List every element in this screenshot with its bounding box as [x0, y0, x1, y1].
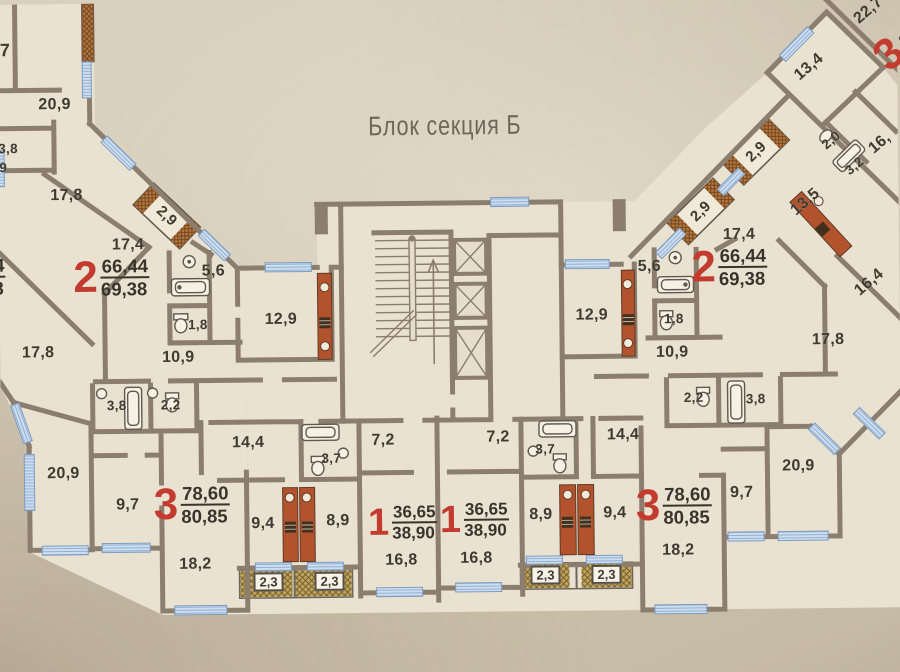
- room-label: 1,8: [664, 311, 684, 326]
- balcony-label: 2,3: [314, 572, 344, 591]
- room-label: 17,4: [112, 236, 145, 254]
- room-label: 3,7: [535, 441, 555, 456]
- apartment-1-left-label: 1 36,6538,90: [368, 502, 437, 543]
- room-label: 9: [0, 160, 7, 175]
- room-label: 17,8: [50, 187, 83, 205]
- room-label: 9,4: [251, 515, 274, 533]
- balcony-label: 2,3: [591, 565, 621, 584]
- total-area: 69,38: [101, 278, 150, 300]
- balcony-label: 2,3: [253, 572, 283, 591]
- bathtub-icon: [539, 421, 576, 437]
- room-label: 17,4: [723, 226, 756, 244]
- room-label: 9,7: [116, 496, 139, 514]
- floor-plan-drawing: [0, 0, 900, 672]
- room-label: 3,8: [746, 391, 766, 406]
- room-label: 1,8: [188, 317, 208, 332]
- floor-plan: Блок секция Б 7 20,9 3,8 9 17,8 2,9 17,4…: [0, 0, 900, 672]
- apartment-number: 3: [154, 483, 179, 527]
- room-label: 7,2: [486, 428, 509, 446]
- room-label: 3,8: [0, 141, 18, 156]
- room-label: 7: [0, 40, 10, 61]
- living-area: 36,65: [392, 502, 437, 523]
- room-label: 16,8: [460, 550, 493, 568]
- room-label: 17,8: [812, 331, 845, 349]
- room-label: 9,4: [603, 504, 626, 522]
- room-label: 18,2: [179, 556, 212, 574]
- bathtub-icon: [657, 276, 693, 292]
- room-label: 2,2: [161, 397, 181, 412]
- balcony-label: 2,3: [530, 565, 560, 584]
- room-label: 5,6: [638, 258, 661, 276]
- total-area: 38,90: [392, 523, 437, 542]
- room-label: 8,9: [326, 512, 349, 530]
- living-area: 66,44: [0, 255, 6, 279]
- sink-icon: [669, 252, 681, 264]
- apartment-2-left-label: 2 66,4469,38: [73, 255, 149, 300]
- total-area: 69,38: [0, 278, 6, 300]
- apartment-number: 2: [73, 256, 98, 300]
- apartment-number: 1: [368, 503, 390, 543]
- room-label: 10,9: [656, 344, 689, 362]
- toilet-icon: [174, 314, 188, 333]
- room-label: 14,4: [232, 434, 265, 452]
- bathtub-icon: [171, 279, 209, 296]
- room-label: 7,2: [371, 432, 394, 450]
- living-area: 66,44: [101, 255, 150, 279]
- bathtub-icon: [302, 424, 339, 440]
- total-area: 69,38: [719, 268, 768, 290]
- room-label: 20,9: [782, 457, 815, 475]
- sink-icon: [183, 256, 195, 268]
- room-label: 8,9: [529, 506, 552, 524]
- page-title: Блок секция Б: [368, 110, 522, 143]
- living-area: 78,60: [181, 482, 230, 506]
- total-area: 80,85: [663, 506, 712, 528]
- apartment-3-right-label: 3 78,6080,85: [636, 483, 712, 528]
- sink-icon: [97, 389, 107, 399]
- room-label: 9,7: [730, 484, 753, 502]
- apartment-number: 1: [440, 500, 462, 540]
- room-label: 14,4: [607, 426, 640, 444]
- toilet-icon: [553, 454, 566, 473]
- wall-stub-right: [613, 199, 626, 231]
- room-label: 16,8: [385, 551, 418, 569]
- apartment-1-right-label: 1 36,6538,90: [440, 499, 509, 540]
- apartment-number: 3: [636, 484, 661, 528]
- living-area: 66,44: [719, 245, 768, 269]
- room-label: 18,2: [662, 541, 695, 559]
- apartment-3-left-label: 3 78,6080,85: [154, 482, 230, 527]
- total-area: 38,90: [464, 520, 509, 539]
- living-area: 78,60: [663, 483, 712, 507]
- living-area: 36,65: [464, 499, 509, 520]
- wall-stub-left: [315, 202, 328, 234]
- apartment-edge-left-label: 66,4469,38: [0, 255, 6, 300]
- room-label: 12,9: [576, 306, 609, 324]
- apartment-2-right-label: 2 66,4469,38: [691, 245, 767, 290]
- room-label: 20,9: [47, 465, 80, 483]
- apartment-number: 2: [691, 245, 716, 289]
- room-label: 17,8: [22, 344, 55, 362]
- room-label: 10,9: [162, 349, 195, 367]
- sink-icon: [148, 388, 158, 398]
- total-area: 80,85: [181, 505, 230, 527]
- room-label: 12,9: [265, 311, 298, 329]
- bathtub-icon: [125, 387, 142, 429]
- room-label: 2,2: [684, 390, 704, 405]
- room-label: 3,7: [321, 451, 341, 466]
- bathtub-icon: [727, 381, 744, 423]
- room-label: 20,9: [38, 96, 71, 114]
- room-label: 5,6: [202, 262, 225, 280]
- elevators: [454, 240, 487, 378]
- room-label: 3,8: [107, 398, 127, 413]
